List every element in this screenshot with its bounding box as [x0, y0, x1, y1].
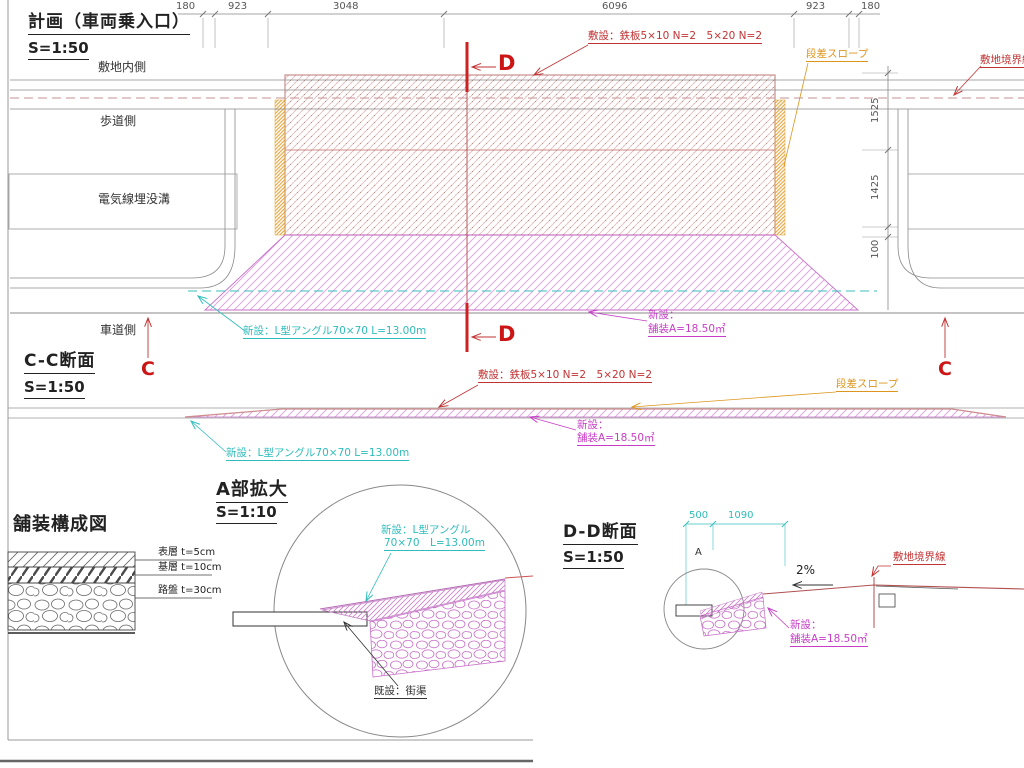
note-new-paving-dd-2: 舗装A=18.50㎡ — [790, 634, 868, 647]
dd-section-scale: S=1:50 — [563, 550, 624, 569]
note-step-slope-plan: 段差スロープ — [806, 49, 868, 62]
pavement-fig-title: 舗装構成図 — [13, 516, 108, 535]
label-electric-trench: 電気線埋没溝 — [98, 193, 170, 206]
label-site-inner: 敷地内側 — [98, 61, 146, 74]
label-sidewalk: 歩道側 — [100, 115, 136, 128]
pavement-layer-surface: 表層 t=5cm — [158, 548, 215, 559]
note-new-paving-plan-2: 舗装A=18.50㎡ — [648, 324, 726, 337]
dd-section-title: D-D断面 — [563, 524, 638, 545]
dim-top-180-right: 180 — [861, 2, 880, 13]
cc-section-linework — [8, 385, 1024, 452]
note-l-angle-plan: 新設：L型アングル70×70 L=13.00m — [243, 326, 426, 339]
note-site-boundary-plan: 敷地境界線 — [980, 55, 1024, 68]
note-l-angle-cc: 新設：L型アングル70×70 L=13.00m — [226, 448, 409, 461]
dim-dd-1090: 1090 — [728, 511, 753, 522]
section-mark-d-bottom: D — [498, 323, 515, 345]
dim-top-6096: 6096 — [602, 2, 627, 13]
detail-a-linework — [233, 485, 533, 737]
section-mark-c-right: C — [938, 360, 952, 380]
note-new-paving-cc-2: 舗装A=18.50㎡ — [577, 433, 655, 446]
dim-right-1425: 1425 — [871, 165, 882, 209]
dim-top-3048: 3048 — [333, 2, 358, 13]
label-roadway: 車道側 — [100, 324, 136, 337]
dim-right-1525: 1525 — [871, 88, 882, 132]
dim-top-923-left: 923 — [228, 2, 247, 13]
note-new-paving-dd-1: 新設： — [790, 620, 822, 631]
pavement-layer-binder: 基層 t=10cm — [158, 563, 221, 574]
note-site-boundary-dd: 敷地境界線 — [893, 552, 946, 565]
dim-right-100: 100 — [871, 227, 882, 271]
detail-a-scale: S=1:10 — [216, 505, 277, 524]
note-new-paving-plan-1: 新設： — [648, 310, 680, 321]
note-step-slope-cc: 段差スロープ — [836, 379, 898, 392]
plan-title: 計画（車両乗入口） — [28, 14, 190, 35]
section-mark-d-top: D — [498, 52, 515, 74]
note-l-angle-detail-2: 70×70 L=13.00m — [384, 538, 485, 551]
pavement-layer-base: 路盤 t=30cm — [158, 586, 221, 597]
drawing-sheet: 計画（車両乗入口） S=1:50 180 923 3048 6096 923 1… — [0, 0, 1024, 768]
dd-grade: 2% — [796, 564, 815, 577]
dim-top-923-right: 923 — [806, 2, 825, 13]
note-steel-plate-plan: 敷設：鉄板5×10 N=2 5×20 N=2 — [588, 31, 762, 44]
cc-section-scale: S=1:50 — [24, 380, 85, 399]
section-mark-c-left: C — [141, 360, 155, 380]
detail-a-title: A部拡大 — [216, 481, 288, 503]
dim-dd-500: 500 — [689, 511, 708, 522]
note-new-paving-cc-1: 新設： — [577, 420, 609, 431]
plan-scale: S=1:50 — [28, 41, 89, 60]
note-existing-gutter: 既設：街渠 — [374, 686, 427, 699]
dd-point-a: A — [695, 548, 702, 559]
note-steel-plate-cc: 敷設：鉄板5×10 N=2 5×20 N=2 — [478, 370, 652, 383]
note-l-angle-detail-1: 新設：L型アングル — [381, 525, 470, 536]
dim-top-180-left: 180 — [176, 2, 195, 13]
cc-section-title: C-C断面 — [24, 353, 95, 374]
dd-section-linework — [664, 521, 1024, 649]
